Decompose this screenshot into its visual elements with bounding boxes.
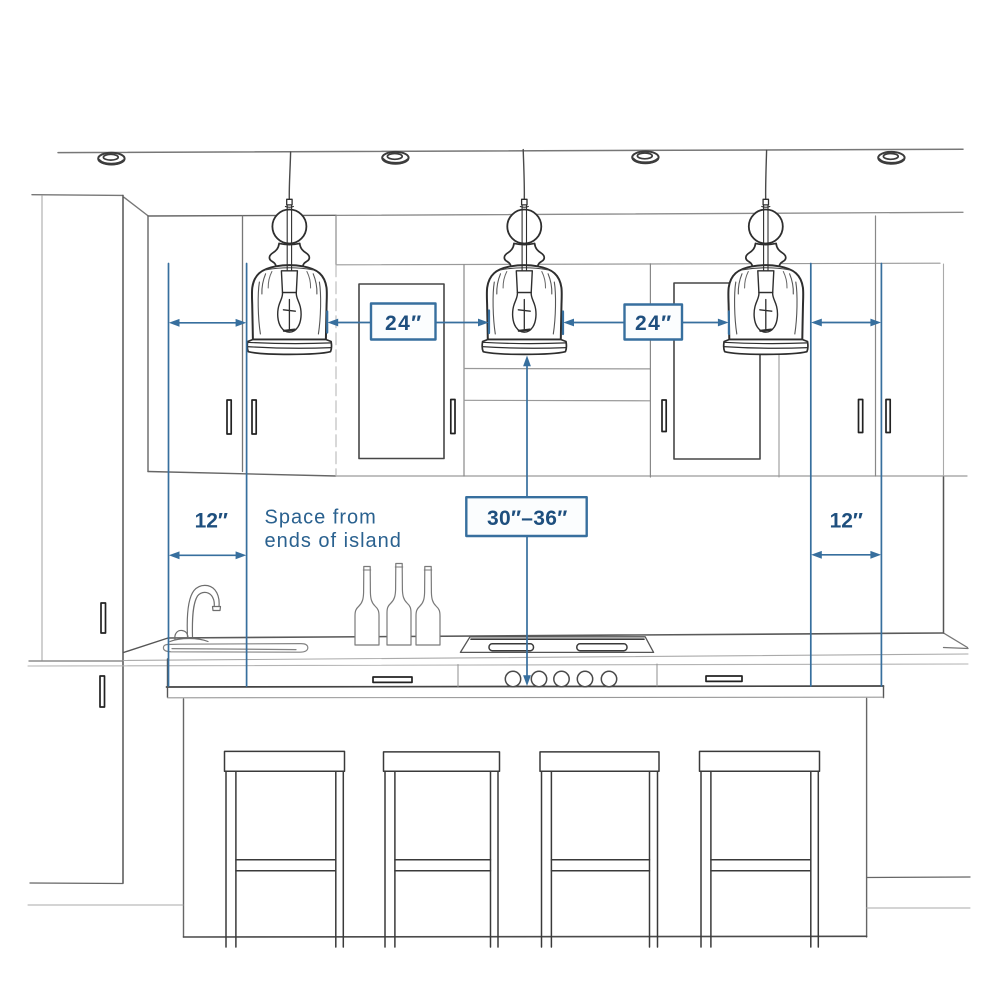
svg-text:30″–36″: 30″–36″ [487,507,568,530]
svg-text:Space from: Space from [265,507,377,529]
svg-text:ends of island: ends of island [265,530,402,552]
svg-text:12″: 12″ [830,510,863,533]
svg-text:12″: 12″ [195,510,228,533]
svg-text:24″: 24″ [635,312,673,335]
svg-text:24″: 24″ [385,312,423,335]
